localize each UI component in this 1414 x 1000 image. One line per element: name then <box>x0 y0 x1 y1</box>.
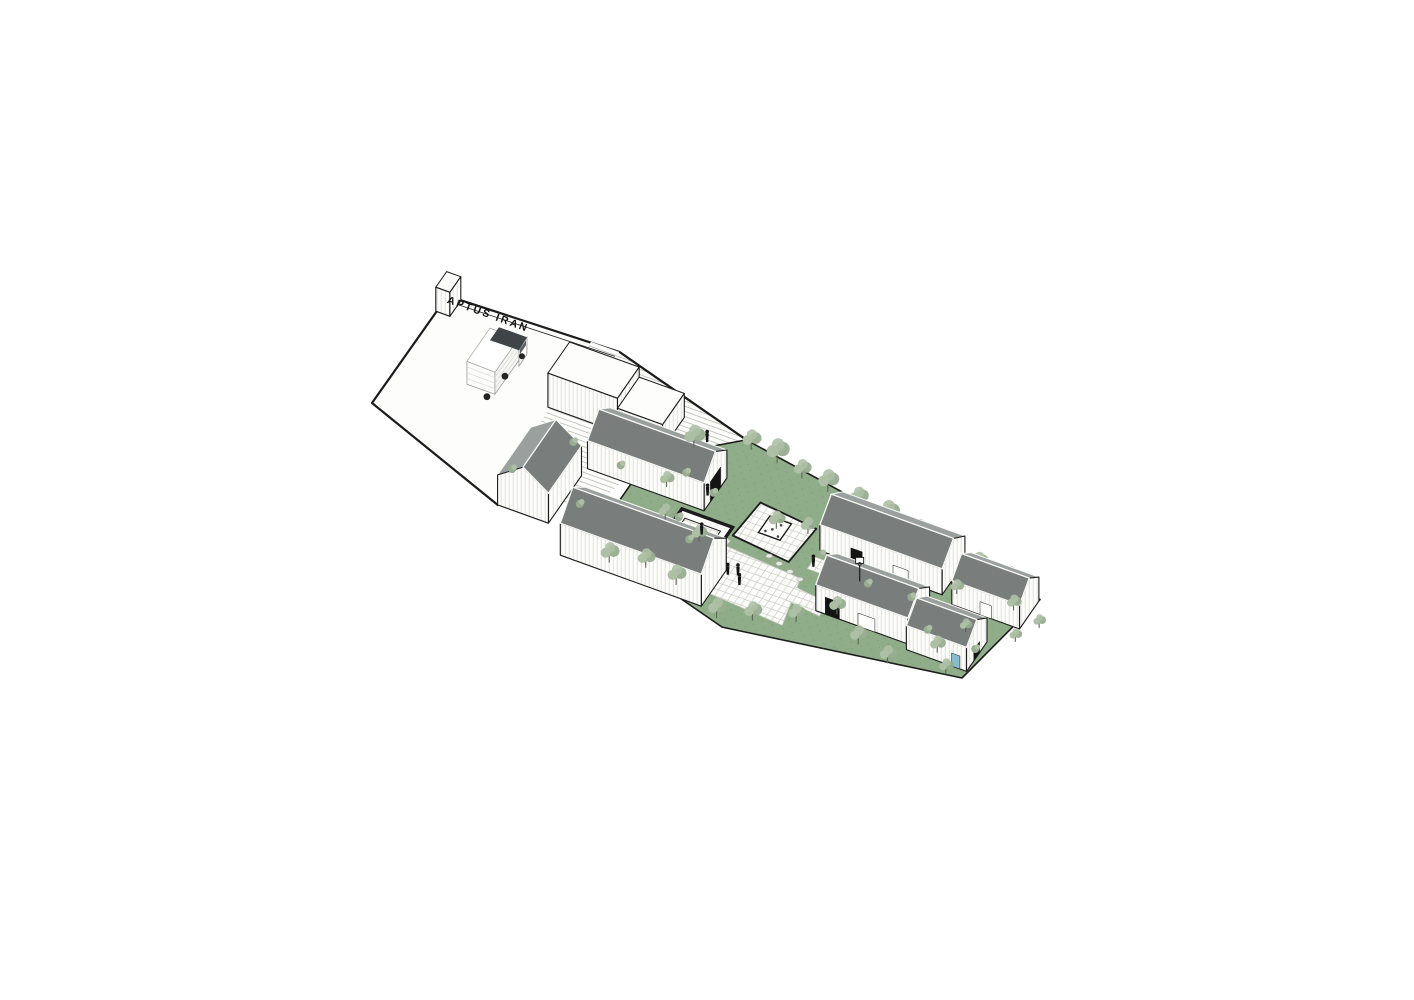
shrub-canopy <box>685 468 691 474</box>
shrub-canopy <box>820 549 826 555</box>
tree-canopy <box>854 487 864 497</box>
truck-wheel <box>519 353 525 359</box>
tree-canopy <box>772 438 785 451</box>
shrub-canopy <box>678 512 684 518</box>
tree-canopy <box>833 596 842 605</box>
tree-canopy <box>663 471 671 479</box>
tree-canopy <box>884 645 893 654</box>
furniture-dot <box>777 535 780 538</box>
truck-wheel <box>502 373 509 380</box>
tree-canopy <box>712 597 722 607</box>
tree-canopy <box>1036 614 1043 621</box>
tree <box>1010 628 1023 642</box>
stepping-stone <box>787 570 793 574</box>
person-head <box>812 555 816 559</box>
person-head <box>736 563 740 567</box>
person-head <box>705 430 709 434</box>
shrub-canopy <box>975 644 981 650</box>
stepping-stone <box>776 562 782 566</box>
tree-canopy <box>963 618 970 625</box>
furniture-dot <box>771 528 774 531</box>
tree-canopy <box>605 542 615 552</box>
tree <box>1033 614 1046 628</box>
tree-canopy <box>747 429 757 439</box>
tree-canopy <box>689 425 701 437</box>
shrub-canopy <box>911 592 917 598</box>
shrub-canopy <box>713 488 719 494</box>
shrub-canopy <box>511 464 517 470</box>
tree-canopy <box>642 548 652 558</box>
person-head <box>706 483 710 487</box>
shrub-canopy <box>867 579 873 585</box>
tree-canopy <box>854 625 864 635</box>
stepping-stone <box>766 554 772 558</box>
tree-canopy <box>804 517 813 526</box>
scene: APTUS IRAN <box>372 272 1046 678</box>
shrub-canopy <box>688 535 694 541</box>
person-head <box>738 573 742 577</box>
tree-canopy <box>934 636 943 645</box>
shrub-canopy <box>579 499 585 505</box>
tree-canopy <box>954 579 962 587</box>
shrub-canopy <box>573 437 579 443</box>
tree-canopy <box>772 510 781 519</box>
tree-canopy <box>798 459 808 469</box>
canvas: APTUS IRAN <box>0 0 1414 1000</box>
stepping-stone <box>797 577 803 581</box>
truck-wheel <box>484 393 491 400</box>
furniture-dot <box>764 530 767 533</box>
tree-canopy <box>942 658 950 666</box>
tree-canopy <box>662 503 670 511</box>
tree-canopy <box>748 601 758 611</box>
furniture-dot <box>780 524 783 527</box>
tree-canopy <box>792 604 801 613</box>
tree-canopy <box>823 469 835 481</box>
shrub-canopy <box>620 461 626 467</box>
person-head <box>726 563 730 567</box>
tree-canopy <box>672 564 682 574</box>
shrub-canopy <box>927 625 933 631</box>
tree-canopy <box>1012 628 1019 635</box>
tree-canopy <box>1010 594 1018 602</box>
person-head <box>700 522 704 526</box>
site-axonometric-drawing: APTUS IRAN <box>0 0 1414 1000</box>
